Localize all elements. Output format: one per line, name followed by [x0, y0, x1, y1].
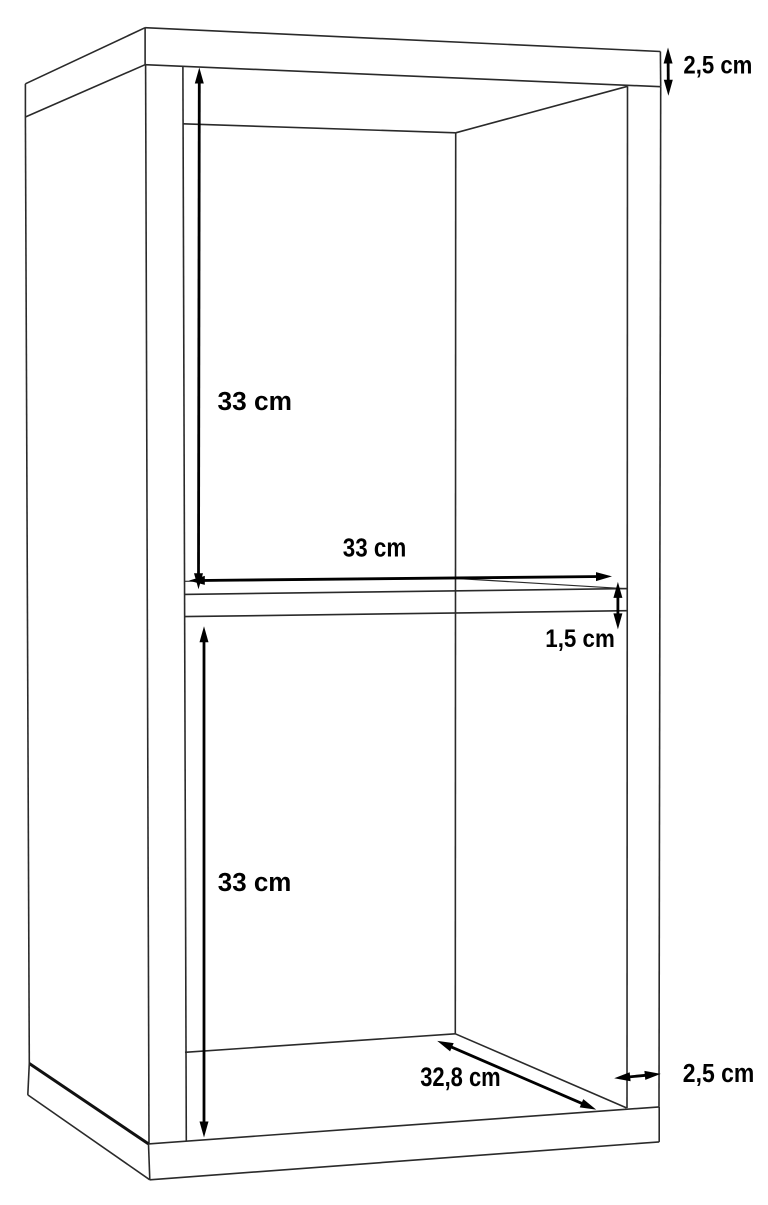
- svg-text:33 cm: 33 cm: [218, 869, 291, 897]
- svg-text:1,5 cm: 1,5 cm: [545, 625, 615, 653]
- svg-text:33 cm: 33 cm: [343, 534, 407, 562]
- svg-text:33 cm: 33 cm: [218, 388, 293, 416]
- svg-text:2,5 cm: 2,5 cm: [683, 1060, 755, 1088]
- svg-text:32,8 cm: 32,8 cm: [420, 1062, 501, 1092]
- svg-text:2,5 cm: 2,5 cm: [683, 52, 752, 80]
